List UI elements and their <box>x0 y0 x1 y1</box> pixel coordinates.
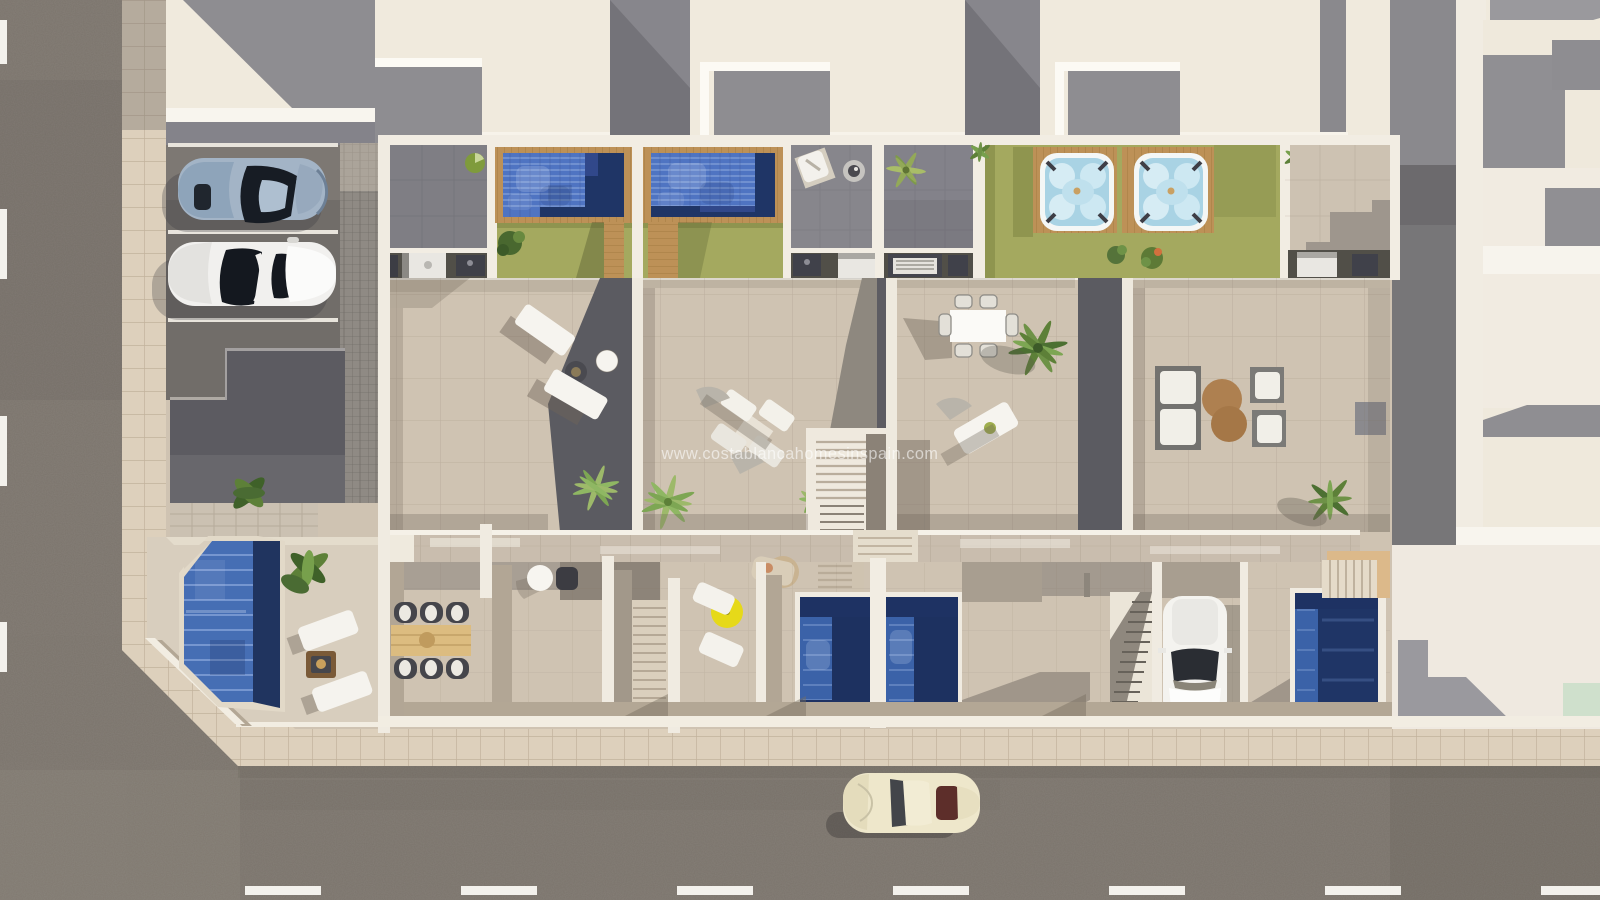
svg-text:www.costablancahomesinspain.co: www.costablancahomesinspain.com <box>661 445 939 463</box>
